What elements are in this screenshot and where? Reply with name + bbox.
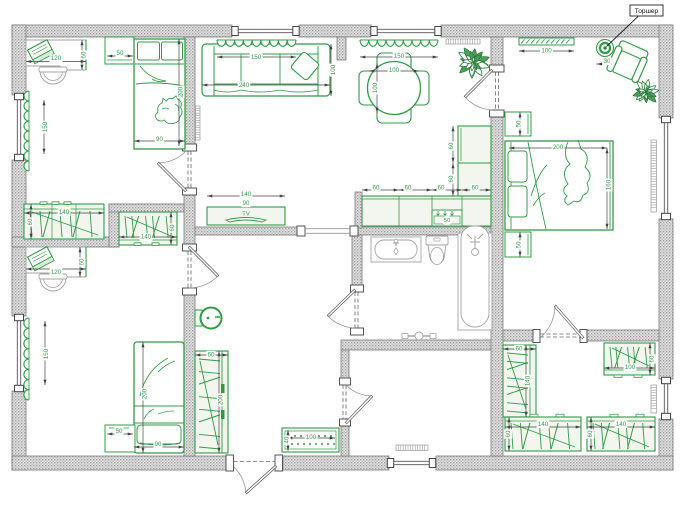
svg-text:100: 100 — [625, 364, 636, 371]
svg-text:200: 200 — [553, 144, 564, 151]
svg-text:40: 40 — [284, 436, 291, 443]
svg-text:200: 200 — [178, 86, 185, 97]
svg-text:90: 90 — [243, 200, 250, 207]
svg-text:50: 50 — [516, 241, 523, 248]
svg-text:60: 60 — [208, 352, 215, 359]
svg-text:50: 50 — [516, 120, 523, 127]
svg-text:100: 100 — [306, 434, 317, 441]
svg-text:150: 150 — [251, 54, 262, 61]
svg-text:30: 30 — [604, 59, 611, 65]
svg-text:140: 140 — [525, 375, 532, 386]
svg-text:150: 150 — [394, 53, 405, 60]
svg-text:TV: TV — [242, 212, 250, 218]
svg-text:140: 140 — [538, 421, 549, 428]
svg-text:50: 50 — [444, 218, 450, 224]
svg-text:60: 60 — [79, 258, 86, 265]
svg-text:60: 60 — [448, 175, 455, 182]
svg-text:240: 240 — [239, 82, 250, 89]
svg-text:60: 60 — [516, 346, 523, 353]
svg-text:140: 140 — [616, 421, 627, 428]
svg-text:140: 140 — [59, 209, 70, 216]
svg-text:140: 140 — [241, 191, 252, 198]
svg-text:150: 150 — [42, 121, 49, 132]
svg-text:60: 60 — [169, 224, 176, 231]
svg-text:100: 100 — [389, 67, 400, 74]
svg-text:60: 60 — [448, 142, 455, 149]
svg-text:120: 120 — [51, 269, 62, 276]
svg-text:200: 200 — [142, 388, 149, 399]
svg-text:90: 90 — [155, 441, 162, 448]
svg-text:50: 50 — [116, 428, 123, 435]
svg-text:60: 60 — [373, 185, 380, 192]
svg-text:60: 60 — [81, 51, 88, 58]
svg-text:120: 120 — [51, 55, 62, 62]
svg-text:60: 60 — [438, 185, 445, 192]
svg-text:160: 160 — [606, 179, 613, 190]
svg-text:150: 150 — [43, 348, 50, 359]
svg-text:100: 100 — [372, 82, 379, 93]
svg-text:60: 60 — [649, 355, 656, 362]
svg-text:50: 50 — [117, 50, 124, 57]
svg-text:90: 90 — [156, 136, 163, 143]
svg-text:100: 100 — [330, 64, 337, 75]
svg-text:60: 60 — [472, 185, 479, 192]
svg-text:Торшер: Торшер — [635, 8, 659, 15]
svg-text:60: 60 — [587, 430, 594, 437]
svg-text:60: 60 — [505, 430, 512, 437]
svg-text:60: 60 — [405, 185, 412, 192]
svg-text:60: 60 — [27, 218, 34, 225]
svg-text:140: 140 — [141, 234, 152, 241]
svg-text:100: 100 — [541, 48, 552, 55]
svg-text:200: 200 — [218, 394, 225, 405]
